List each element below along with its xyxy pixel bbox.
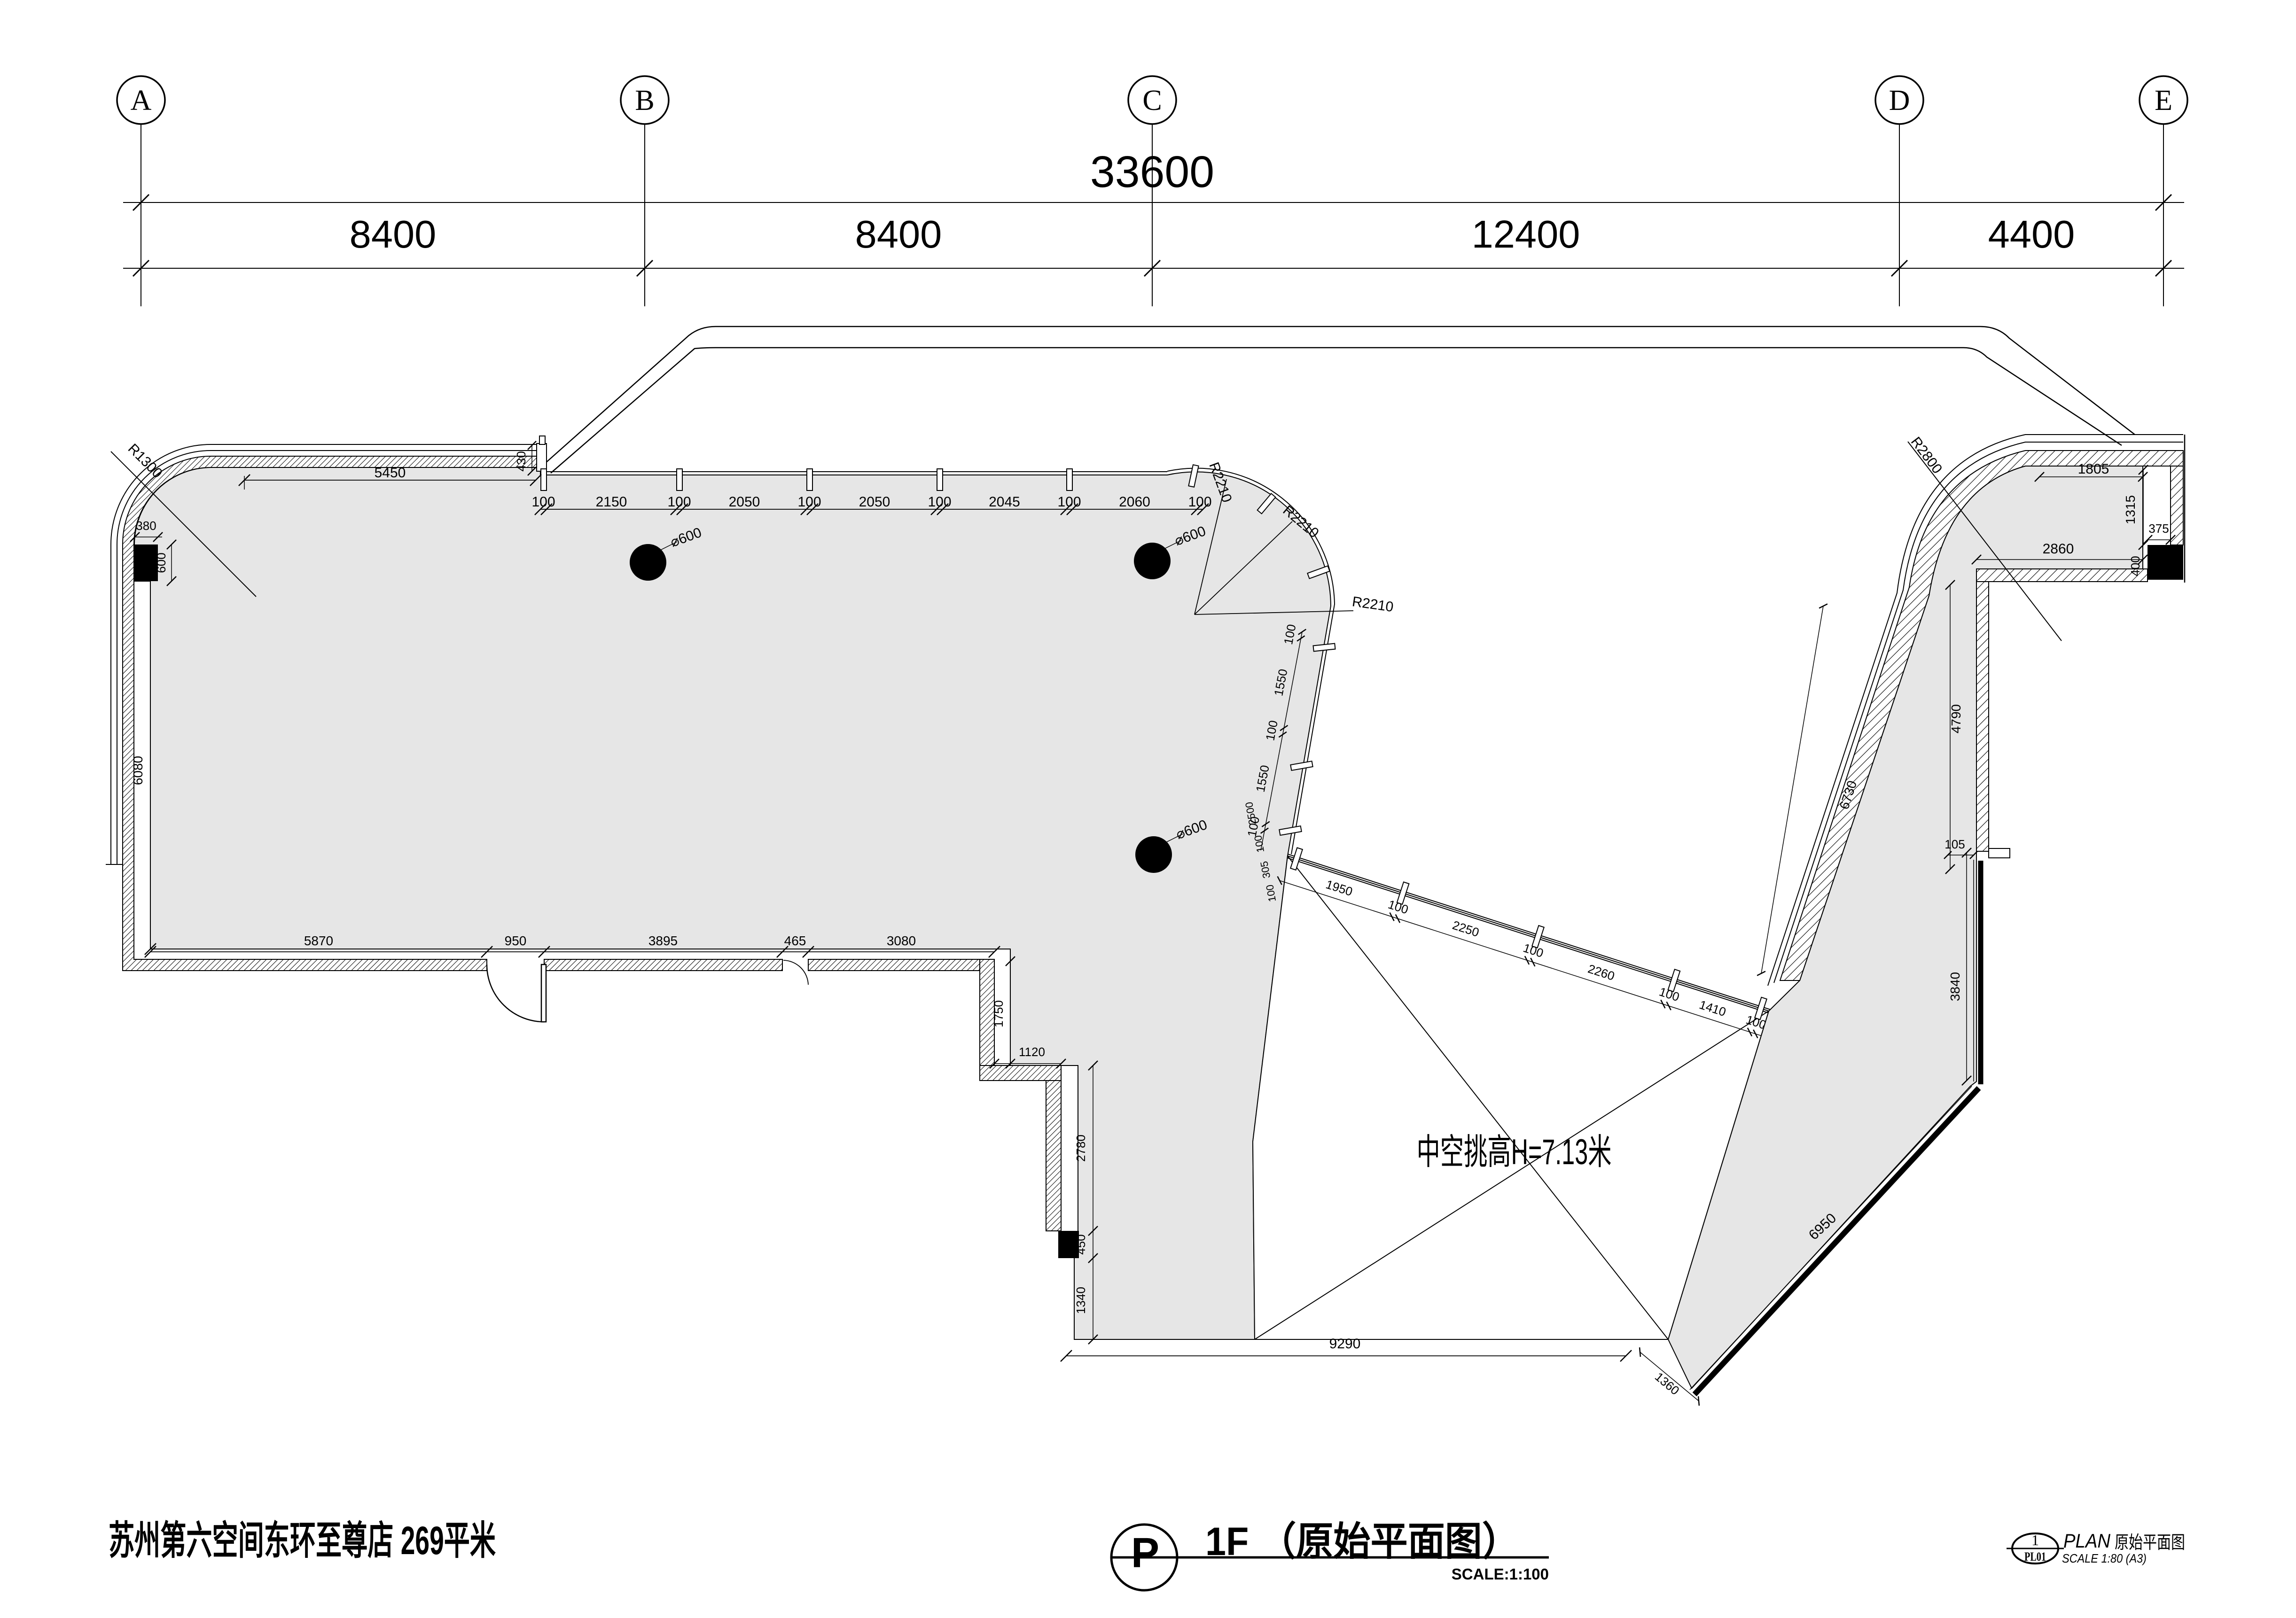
svg-text:100: 100 <box>1188 494 1211 510</box>
svg-text:苏州第六空间东环至尊店 269平米: 苏州第六空间东环至尊店 269平米 <box>109 1518 496 1563</box>
svg-text:原始平面图: 原始平面图 <box>2115 1533 2185 1553</box>
svg-text:5870: 5870 <box>304 933 333 948</box>
svg-text:P: P <box>1131 1530 1159 1577</box>
svg-text:1315: 1315 <box>2123 495 2138 524</box>
svg-text:2860: 2860 <box>2043 541 2074 557</box>
svg-text:1F （原始平面图）: 1F （原始平面图） <box>1205 1519 1519 1564</box>
svg-text:4790: 4790 <box>1949 704 1963 733</box>
svg-text:3895: 3895 <box>648 933 678 948</box>
svg-text:PLAN: PLAN <box>2063 1530 2111 1552</box>
svg-text:375: 375 <box>2148 521 2169 536</box>
svg-text:2060: 2060 <box>1119 494 1150 510</box>
svg-text:450: 450 <box>1074 1234 1088 1254</box>
svg-text:1805: 1805 <box>2078 461 2109 477</box>
svg-text:100: 100 <box>928 494 951 510</box>
svg-text:380: 380 <box>136 519 156 533</box>
svg-text:D: D <box>1889 85 1910 117</box>
svg-text:2150: 2150 <box>596 494 627 510</box>
svg-text:E: E <box>2155 85 2172 117</box>
svg-text:3840: 3840 <box>1948 972 1962 1001</box>
svg-text:B: B <box>635 85 654 117</box>
svg-text:100: 100 <box>1057 494 1081 510</box>
svg-text:6080: 6080 <box>131 756 145 785</box>
svg-text:430: 430 <box>514 451 528 471</box>
svg-text:3080: 3080 <box>887 933 916 948</box>
svg-text:2045: 2045 <box>989 494 1020 510</box>
svg-text:PL01: PL01 <box>2024 1550 2046 1564</box>
svg-text:600: 600 <box>154 552 168 573</box>
svg-text:100: 100 <box>531 494 555 510</box>
svg-text:2050: 2050 <box>729 494 760 510</box>
svg-text:A: A <box>131 85 152 117</box>
svg-text:100: 100 <box>797 494 821 510</box>
svg-text:105: 105 <box>1945 837 1965 851</box>
svg-text:C: C <box>1142 85 1162 117</box>
svg-text:8400: 8400 <box>855 212 942 256</box>
svg-text:SCALE 1:80 (A3): SCALE 1:80 (A3) <box>2062 1551 2147 1565</box>
svg-text:1340: 1340 <box>1074 1287 1088 1314</box>
svg-text:100: 100 <box>667 494 691 510</box>
svg-text:1750: 1750 <box>992 1000 1006 1027</box>
svg-text:2050: 2050 <box>859 494 890 510</box>
svg-text:5450: 5450 <box>375 465 406 481</box>
svg-text:950: 950 <box>505 933 527 948</box>
svg-text:4400: 4400 <box>1988 212 2075 256</box>
svg-text:33600: 33600 <box>1090 147 1214 197</box>
svg-text:12400: 12400 <box>1472 212 1580 256</box>
svg-text:SCALE:1:100: SCALE:1:100 <box>1452 1565 1549 1583</box>
svg-text:2780: 2780 <box>1074 1135 1088 1162</box>
svg-text:465: 465 <box>784 933 806 948</box>
svg-text:9290: 9290 <box>1329 1336 1361 1352</box>
svg-text:中空挑高H=7.13米: 中空挑高H=7.13米 <box>1417 1132 1612 1172</box>
svg-text:1120: 1120 <box>1019 1045 1045 1059</box>
svg-text:1: 1 <box>2031 1532 2039 1548</box>
svg-text:400: 400 <box>2128 556 2142 576</box>
svg-text:8400: 8400 <box>350 212 437 256</box>
